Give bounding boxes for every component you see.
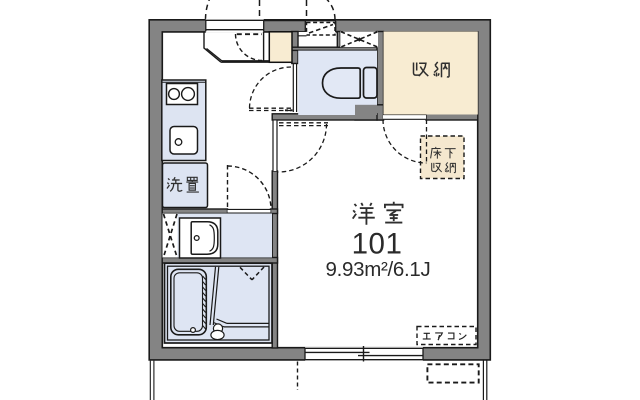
- svg-text:101: 101: [352, 228, 403, 261]
- svg-text:9.93m²/6.1J: 9.93m²/6.1J: [326, 258, 431, 281]
